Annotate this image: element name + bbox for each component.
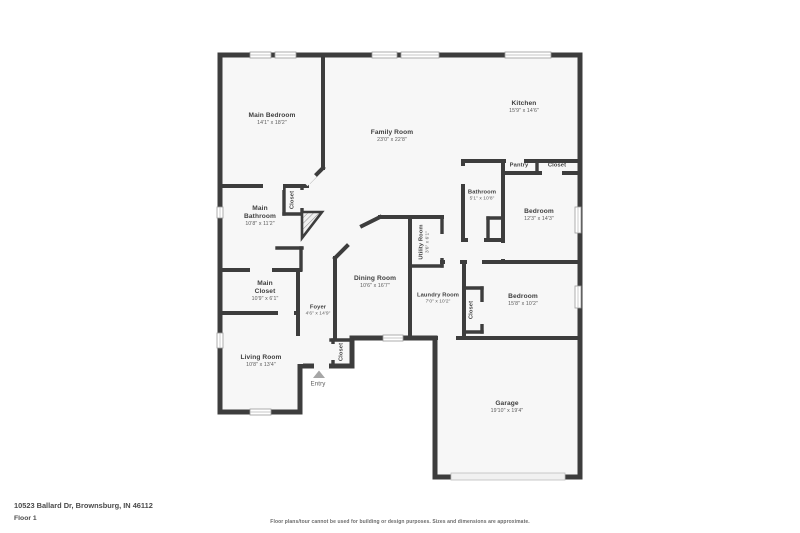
address-text: 10523 Ballard Dr, Brownsburg, IN 46112 [14,501,153,510]
garage-door [451,473,565,480]
floorplan-page: Main Bedroom14'1" x 18'2"Family Room23'0… [0,0,800,533]
exterior-walls [220,55,580,477]
entry-arrow-icon [313,371,325,379]
floorplan-drawing [0,0,800,533]
disclaimer-text: Floor plans/tour cannot be used for buil… [0,519,800,525]
